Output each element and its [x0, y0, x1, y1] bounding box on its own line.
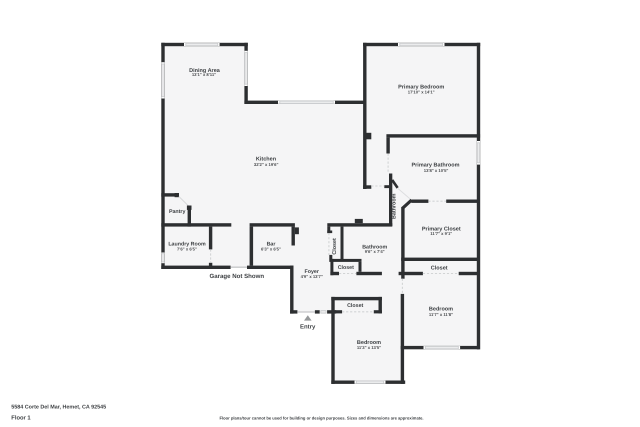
svg-text:Closet: Closet — [347, 303, 363, 309]
svg-text:6'3" x 6'5": 6'3" x 6'5" — [261, 247, 281, 252]
svg-text:Floor 1: Floor 1 — [11, 415, 31, 422]
svg-text:Garage Not Shown: Garage Not Shown — [210, 273, 265, 280]
svg-text:7'6" x 6'5": 7'6" x 6'5" — [177, 247, 197, 252]
svg-text:Bathroom: Bathroom — [391, 193, 397, 219]
svg-text:11'3" x 13'5": 11'3" x 13'5" — [357, 345, 381, 350]
svg-text:5584 Corte Del Mar, Hemet, CA: 5584 Corte Del Mar, Hemet, CA 92545 — [11, 404, 106, 410]
svg-text:Pantry: Pantry — [169, 209, 186, 215]
svg-text:Closet: Closet — [332, 238, 338, 255]
svg-text:11'7" x 9'1": 11'7" x 9'1" — [430, 231, 452, 236]
svg-text:4'9" x 13'7": 4'9" x 13'7" — [301, 274, 323, 279]
svg-text:Entry: Entry — [300, 323, 316, 330]
svg-text:32'2" x 19'6": 32'2" x 19'6" — [254, 162, 279, 167]
svg-text:Closet: Closet — [431, 266, 448, 272]
svg-text:17'10" x 14'1": 17'10" x 14'1" — [408, 90, 435, 95]
svg-text:13'1" x 8'11": 13'1" x 8'11" — [192, 72, 216, 77]
svg-text:11'7" x 11'8": 11'7" x 11'8" — [429, 312, 453, 317]
svg-text:Closet: Closet — [338, 265, 354, 271]
svg-text:9'6" x 7'4": 9'6" x 7'4" — [365, 249, 385, 254]
svg-text:13'8" x 10'5": 13'8" x 10'5" — [424, 168, 449, 173]
svg-text:Floor plans/tour cannot be use: Floor plans/tour cannot be used for buil… — [219, 415, 423, 420]
